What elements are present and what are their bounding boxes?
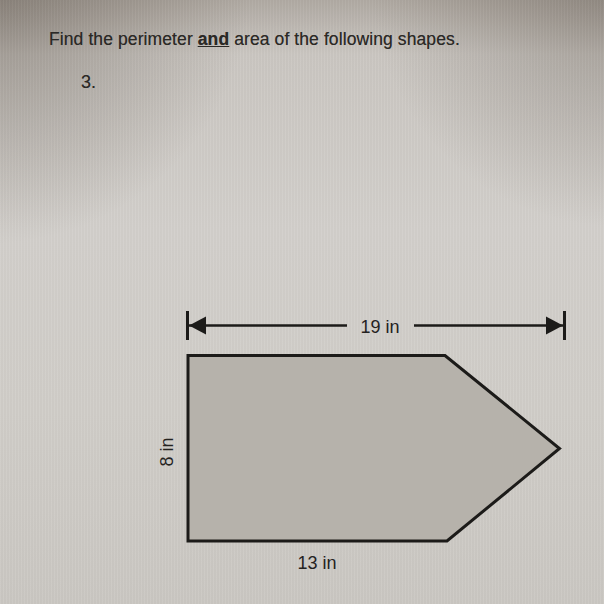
bottom-width-label: 13 in bbox=[297, 553, 336, 573]
geometry-figure: 19 in 8 in 13 in bbox=[0, 0, 604, 604]
worksheet-photo: Find the perimeter and area of the follo… bbox=[0, 0, 604, 604]
pentagon-shape bbox=[188, 356, 560, 542]
top-width-label: 19 in bbox=[360, 317, 399, 337]
left-height-label: 8 in bbox=[157, 437, 177, 466]
right-arrowhead-icon bbox=[546, 317, 563, 335]
left-arrowhead-icon bbox=[189, 317, 206, 335]
